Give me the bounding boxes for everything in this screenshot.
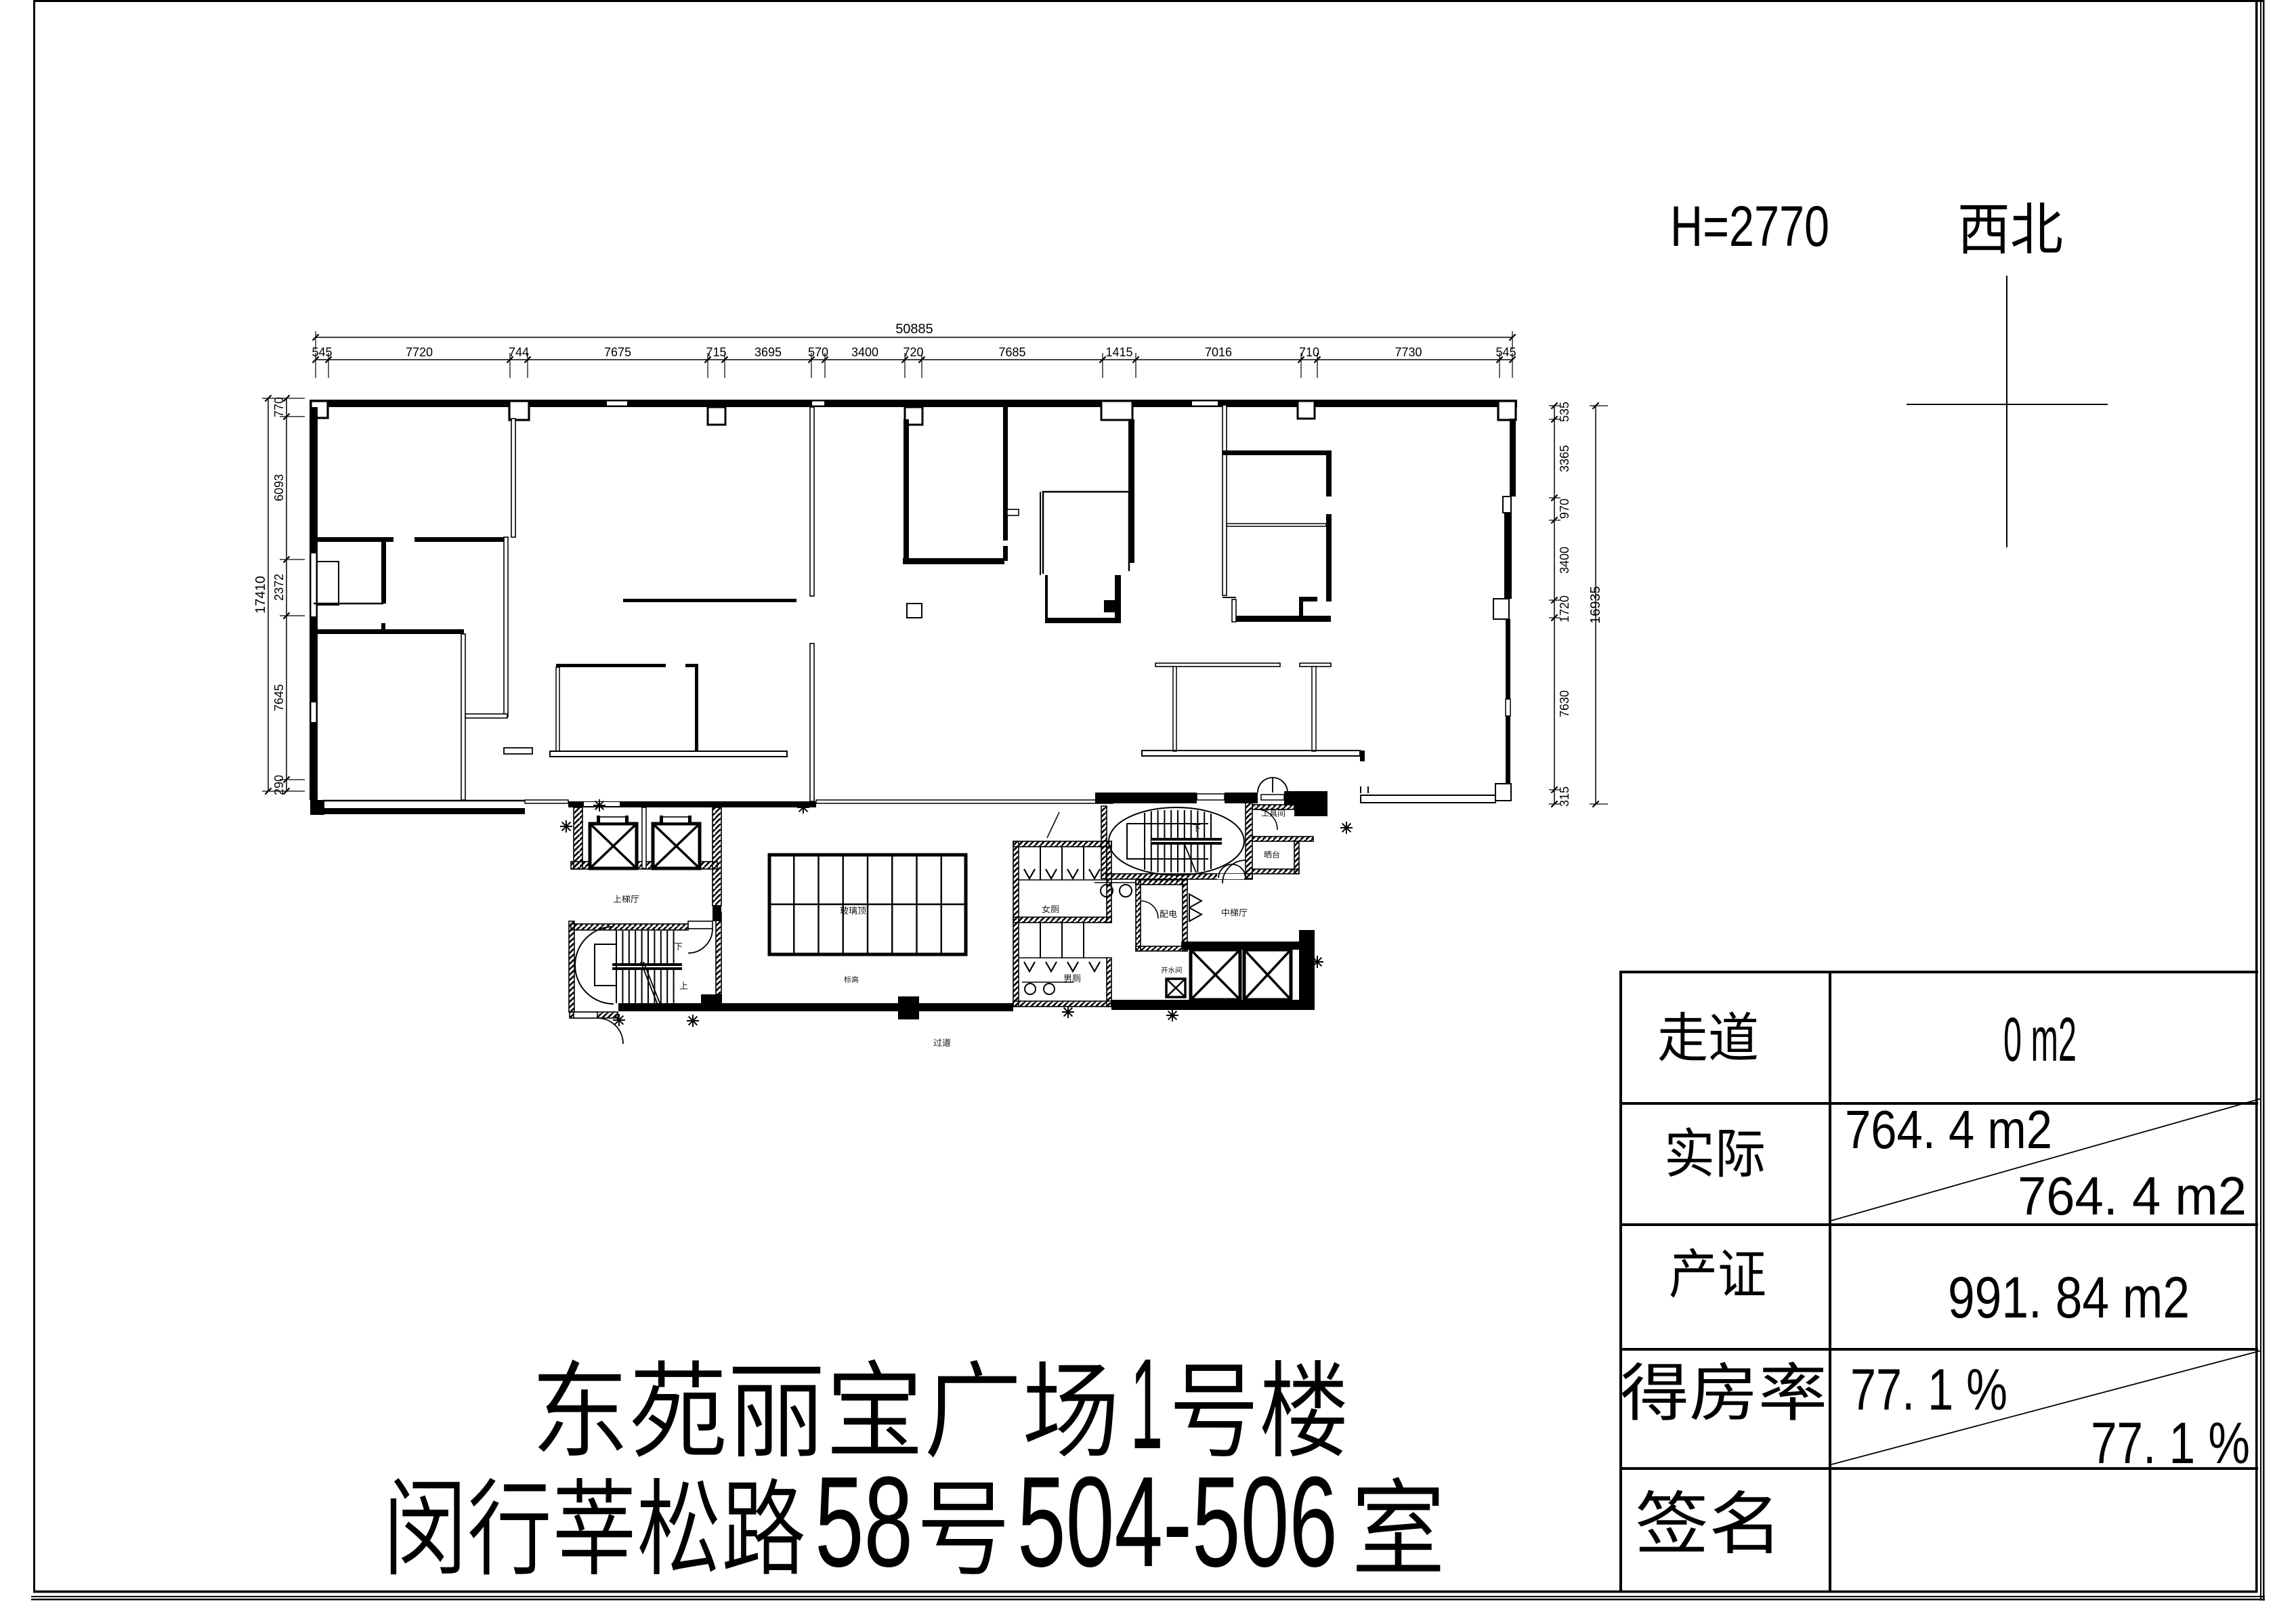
svg-text:0 m2: 0 m2 — [2003, 1005, 2077, 1074]
svg-text:764. 4 m2: 764. 4 m2 — [2018, 1166, 2247, 1226]
svg-text:2372: 2372 — [272, 574, 286, 601]
svg-text:991. 84 m2: 991. 84 m2 — [1948, 1265, 2190, 1330]
svg-text:545: 545 — [1495, 345, 1516, 359]
svg-text:7645: 7645 — [272, 684, 286, 711]
svg-text:7675: 7675 — [604, 345, 631, 359]
svg-text:290: 290 — [272, 775, 286, 795]
svg-text:3695: 3695 — [754, 345, 782, 359]
svg-text:77. 1 %: 77. 1 % — [2091, 1411, 2250, 1476]
svg-text:H=2770: H=2770 — [1670, 194, 1829, 258]
svg-text:7016: 7016 — [1205, 345, 1232, 359]
svg-text:315: 315 — [1558, 786, 1571, 807]
svg-text:6093: 6093 — [272, 474, 286, 501]
svg-text:7730: 7730 — [1395, 345, 1422, 359]
svg-text:3365: 3365 — [1558, 445, 1571, 472]
svg-text:50885: 50885 — [895, 322, 933, 337]
svg-text:720: 720 — [903, 345, 923, 359]
svg-text:710: 710 — [1299, 345, 1319, 359]
svg-text:3400: 3400 — [851, 345, 878, 359]
svg-text:504-506: 504-506 — [1017, 1450, 1338, 1594]
svg-text:1720: 1720 — [1558, 595, 1571, 622]
svg-text:3400: 3400 — [1558, 547, 1571, 574]
svg-text:1415: 1415 — [1105, 345, 1132, 359]
svg-text:58: 58 — [815, 1450, 913, 1594]
svg-text:545: 545 — [312, 345, 332, 359]
svg-text:744: 744 — [509, 345, 529, 359]
svg-text:16935: 16935 — [1588, 586, 1603, 624]
svg-text:715: 715 — [706, 345, 726, 359]
svg-text:7685: 7685 — [998, 345, 1025, 359]
svg-text:7630: 7630 — [1558, 690, 1571, 717]
svg-text:535: 535 — [1558, 402, 1571, 422]
svg-text:570: 570 — [808, 345, 828, 359]
svg-text:970: 970 — [1558, 499, 1571, 519]
svg-text:764. 4 m2: 764. 4 m2 — [1845, 1099, 2052, 1160]
svg-text:77. 1 %: 77. 1 % — [1850, 1357, 2007, 1422]
svg-text:770: 770 — [272, 397, 286, 417]
svg-text:7720: 7720 — [406, 345, 433, 359]
svg-text:17410: 17410 — [253, 576, 268, 614]
